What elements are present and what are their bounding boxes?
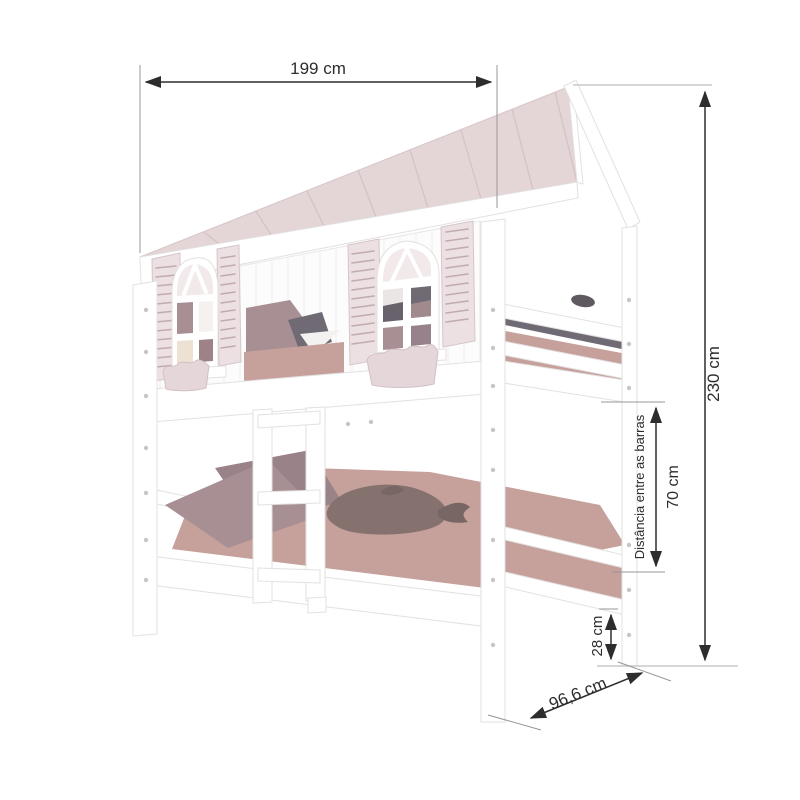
right-window-shutter-left [348,239,381,365]
dimension-foot-clearance: 28 cm [589,609,618,659]
ladder-foot [308,597,326,613]
right-window-pane-4 [411,324,431,346]
ladder-rung-3 [258,568,320,583]
left-window-pane-3 [177,340,193,364]
bar-distance-label: 70 cm [665,465,682,509]
height-label: 230 cm [704,346,723,402]
dimension-depth: 96,6 cm [488,662,671,730]
depth-label: 96,6 cm [546,673,609,713]
depth-extension-right [618,662,671,681]
right-window [348,221,475,365]
left-window-pane-2 [199,301,213,332]
width-label: 199 cm [290,59,346,78]
lower-bunk [150,450,634,628]
front-left-post [133,281,157,636]
foot-clearance-label: 28 cm [589,616,606,657]
right-window-pane-3 [383,326,403,350]
left-window-pane-4 [199,339,213,362]
dimension-diagram-canvas: 199 cm 230 cm Distância entre as barras … [0,0,800,800]
bar-distance-caption: Distância entre as barras [632,414,647,559]
bed-illustration [133,80,640,722]
bunk-bed-diagram: 199 cm 230 cm Distância entre as barras … [0,0,800,800]
upper-side-pillow-knob [570,293,596,309]
left-window-pane-1 [177,302,193,334]
ladder-rung-2 [258,490,320,505]
